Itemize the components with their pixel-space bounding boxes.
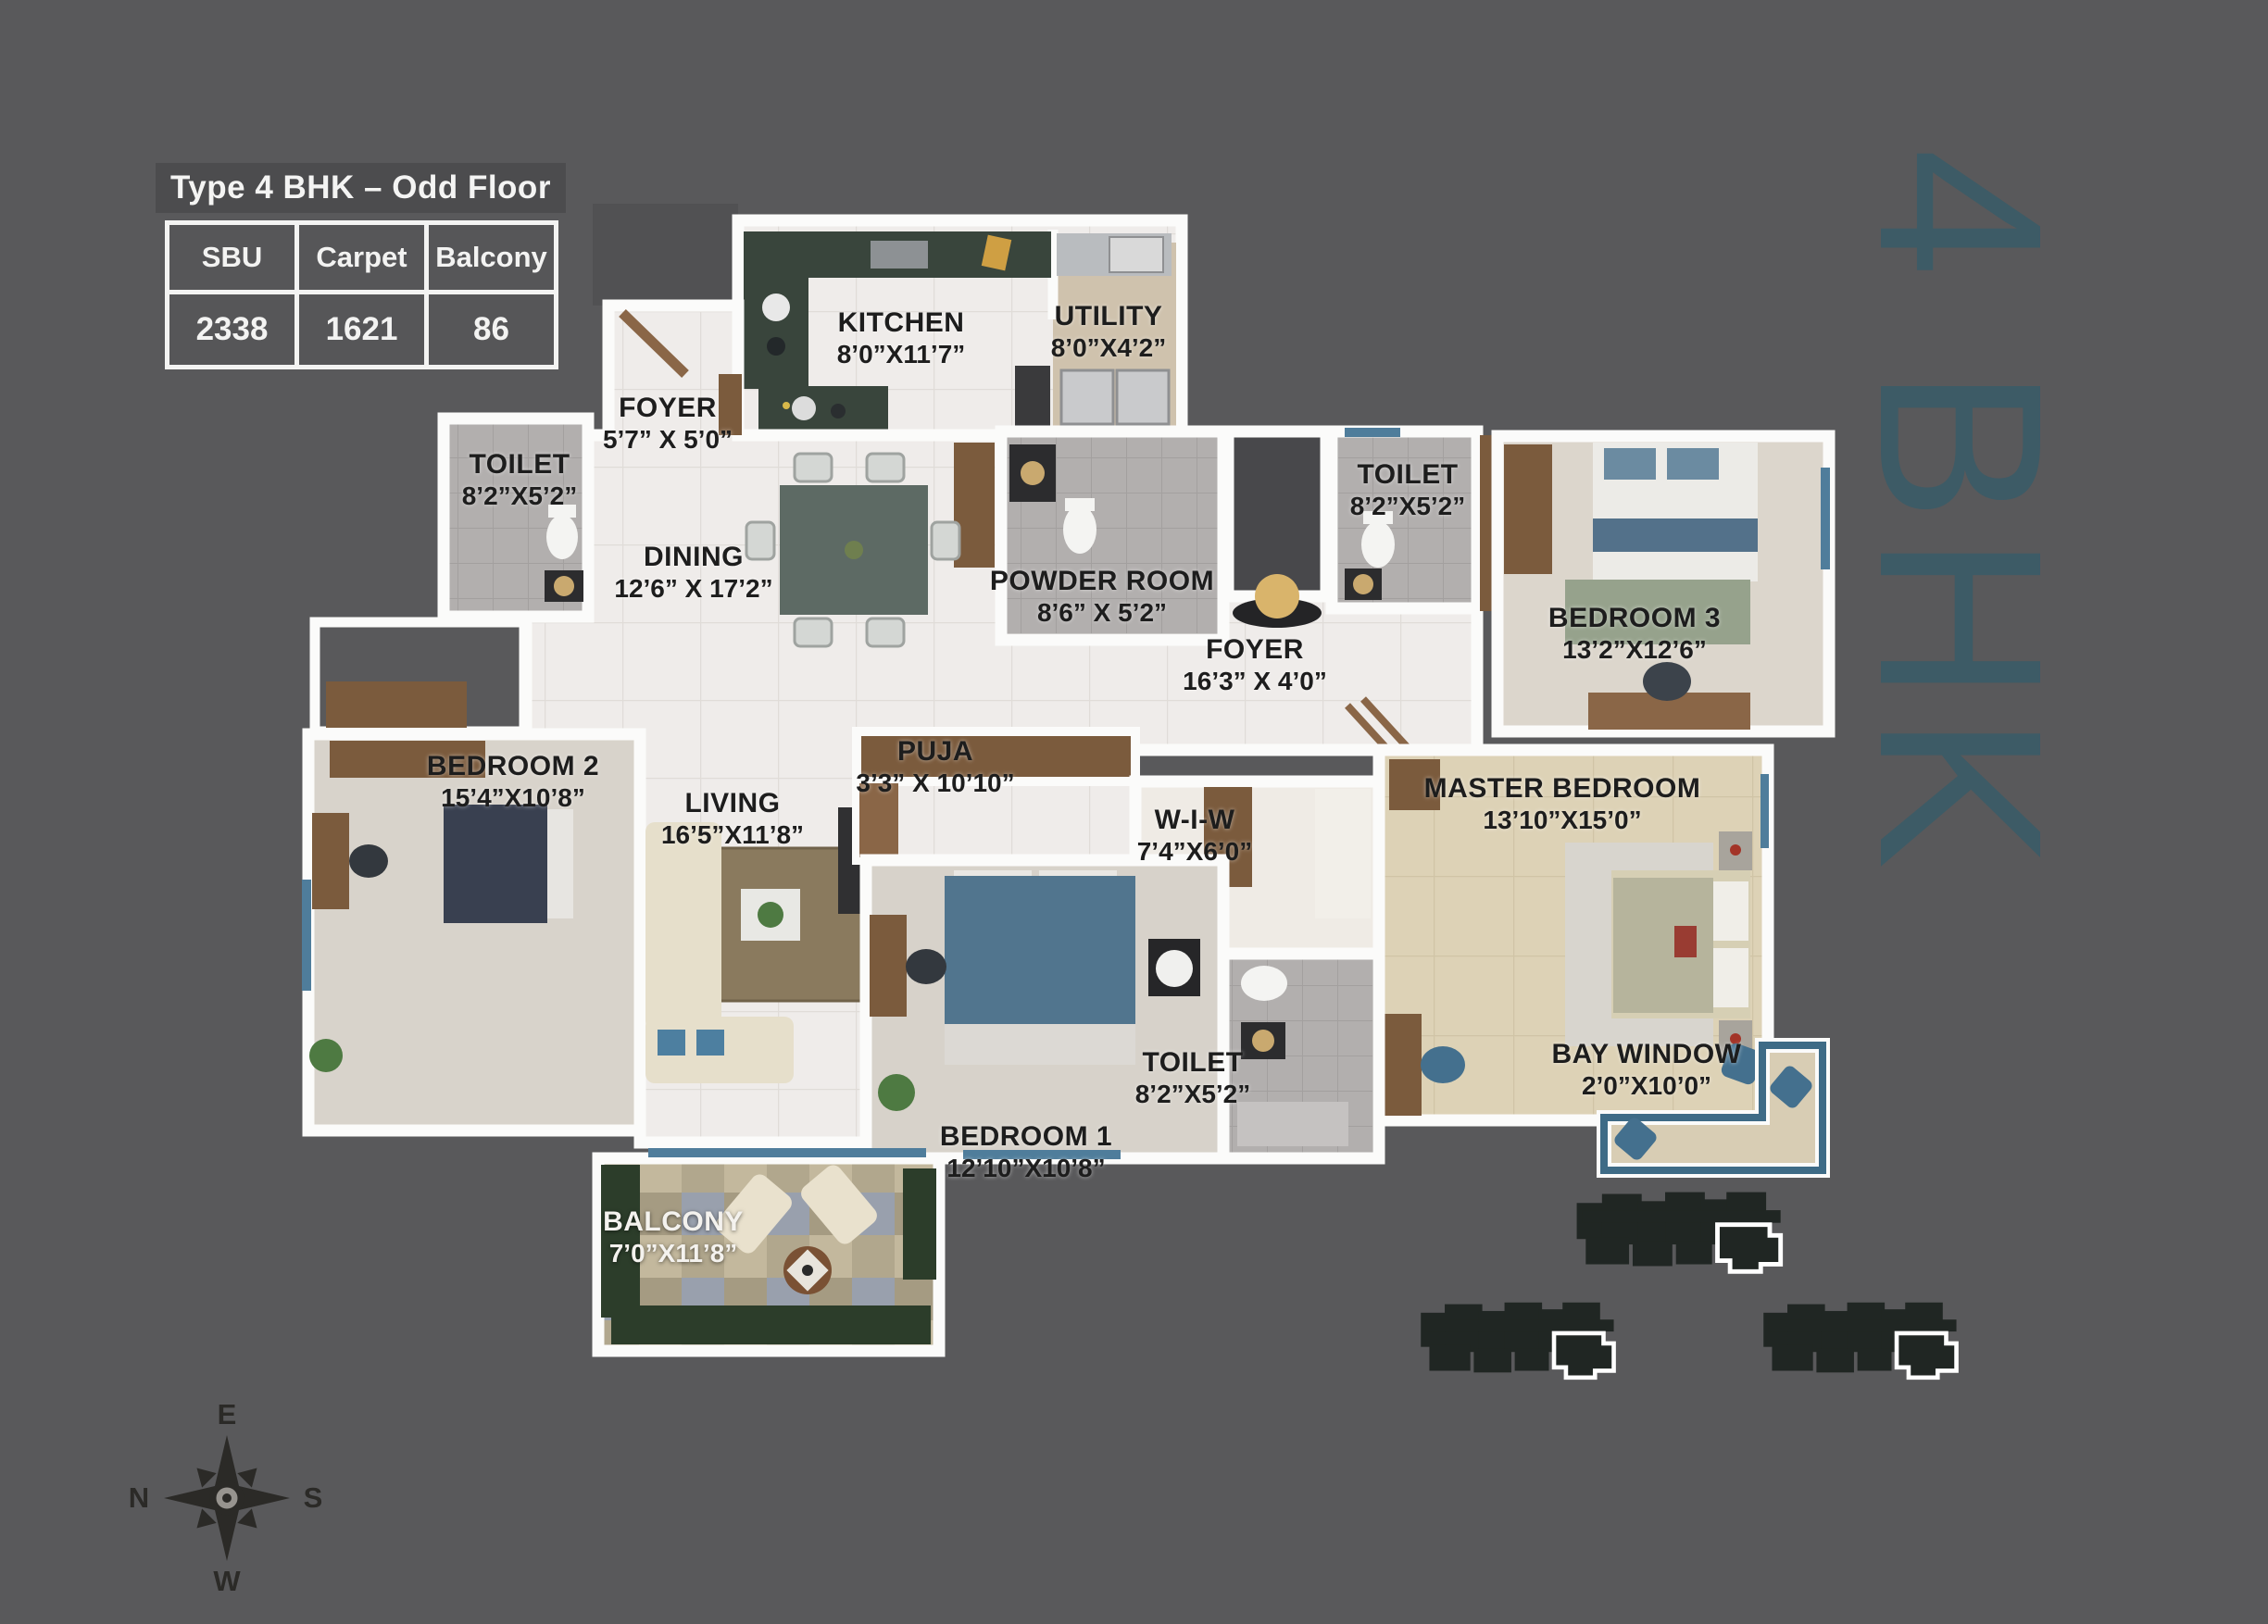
kitchen-island bbox=[758, 386, 888, 435]
label-powder-room: POWDER ROOM8’6” X 5’2” bbox=[990, 566, 1214, 629]
label-foyer-entry: FOYER5’7” X 5’0” bbox=[603, 393, 733, 456]
compass-west: W bbox=[213, 1565, 240, 1598]
keyplan-thumbnails bbox=[1421, 1193, 1956, 1378]
entry-void bbox=[593, 204, 738, 306]
service-shaft bbox=[1228, 431, 1326, 628]
label-utility: UTILITY8’0”X4’2” bbox=[1051, 301, 1167, 364]
label-living: LIVING16’5”X11’8” bbox=[661, 788, 804, 851]
label-wiw: W-I-W7’4”X6’0” bbox=[1137, 805, 1253, 868]
compass-east: E bbox=[218, 1398, 237, 1431]
compass-icon bbox=[164, 1435, 290, 1561]
label-bedroom-2: BEDROOM 215’4”X10’8” bbox=[427, 751, 599, 814]
label-dining: DINING12’6” X 17’2” bbox=[614, 542, 772, 605]
label-master-bedroom: MASTER BEDROOM13’10”X15’0” bbox=[1424, 773, 1701, 836]
compass-north: N bbox=[129, 1481, 149, 1515]
label-puja: PUJA3’3” X 10’10” bbox=[856, 736, 1014, 799]
label-bedroom-3: BEDROOM 313’2”X12’6” bbox=[1548, 603, 1721, 666]
compass-south: S bbox=[304, 1481, 323, 1515]
floor-plan-page: 4 BHK bbox=[0, 0, 2268, 1624]
keyplan-bottom-right bbox=[1763, 1303, 1956, 1378]
label-kitchen: KITCHEN8’0”X11’7” bbox=[837, 307, 966, 370]
label-toilet-left: TOILET8’2”X5’2” bbox=[462, 449, 578, 512]
label-bedroom-1: BEDROOM 112’10”X10’8” bbox=[940, 1121, 1112, 1184]
label-foyer-inner: FOYER16’3” X 4’0” bbox=[1183, 634, 1327, 697]
bedroom-1-room bbox=[866, 860, 1223, 1159]
keyplan-bottom-left bbox=[1421, 1303, 1613, 1378]
label-toilet-right: TOILET8’2”X5’2” bbox=[1350, 459, 1466, 522]
label-bay-window: BAY WINDOW2’0”X10’0” bbox=[1551, 1039, 1741, 1102]
floor-plan-svg bbox=[0, 0, 2268, 1624]
keyplan-top bbox=[1577, 1193, 1781, 1272]
label-toilet-bottom: TOILET8’2”X5’2” bbox=[1135, 1047, 1251, 1110]
bedroom-3-room bbox=[1497, 436, 1830, 731]
label-balcony: BALCONY7’0”X11’8” bbox=[603, 1206, 744, 1269]
bedroom2-entry-notch bbox=[315, 622, 524, 731]
